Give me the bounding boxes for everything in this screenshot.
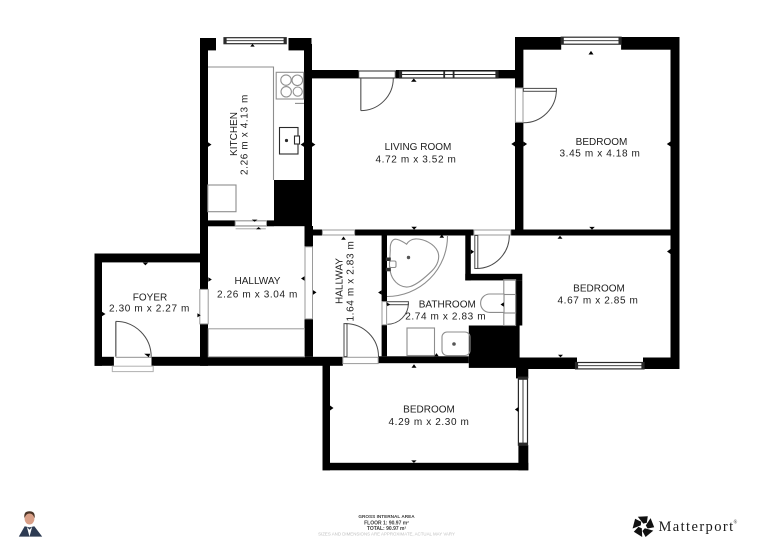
svg-text:4.67 m x 2.85 m: 4.67 m x 2.85 m xyxy=(558,295,639,306)
svg-text:2.26 m x 4.13 m: 2.26 m x 4.13 m xyxy=(239,94,250,175)
svg-text:BATHROOM: BATHROOM xyxy=(419,300,476,311)
svg-text:3.45 m x 4.18 m: 3.45 m x 4.18 m xyxy=(560,149,641,160)
svg-text:4.29 m x 2.30 m: 4.29 m x 2.30 m xyxy=(389,417,470,428)
svg-text:BEDROOM: BEDROOM xyxy=(403,404,455,415)
svg-text:2.30 m x 2.27 m: 2.30 m x 2.27 m xyxy=(109,304,190,315)
svg-text:BEDROOM: BEDROOM xyxy=(573,283,625,294)
svg-text:2.74 m x 2.83 m: 2.74 m x 2.83 m xyxy=(405,312,486,323)
svg-text:GROSS INTERNAL AREA: GROSS INTERNAL AREA xyxy=(358,514,415,519)
svg-text:HALLWAY: HALLWAY xyxy=(335,258,346,304)
svg-text:Matterport: Matterport xyxy=(659,519,735,535)
svg-text:HALLWAY: HALLWAY xyxy=(235,276,281,287)
svg-text:SIZES AND DIMENSIONS ARE APPRO: SIZES AND DIMENSIONS ARE APPROXIMATE, AC… xyxy=(318,532,455,537)
svg-text:BEDROOM: BEDROOM xyxy=(576,137,628,148)
svg-text:LIVING ROOM: LIVING ROOM xyxy=(385,142,452,153)
svg-text:2.26 m x 3.04 m: 2.26 m x 3.04 m xyxy=(217,290,298,301)
svg-text:FOYER: FOYER xyxy=(133,293,167,304)
svg-text:4.72 m x 3.52 m: 4.72 m x 3.52 m xyxy=(376,155,457,166)
svg-text:1.64 m x 2.83 m: 1.64 m x 2.83 m xyxy=(346,241,357,322)
svg-text:®: ® xyxy=(734,520,738,526)
